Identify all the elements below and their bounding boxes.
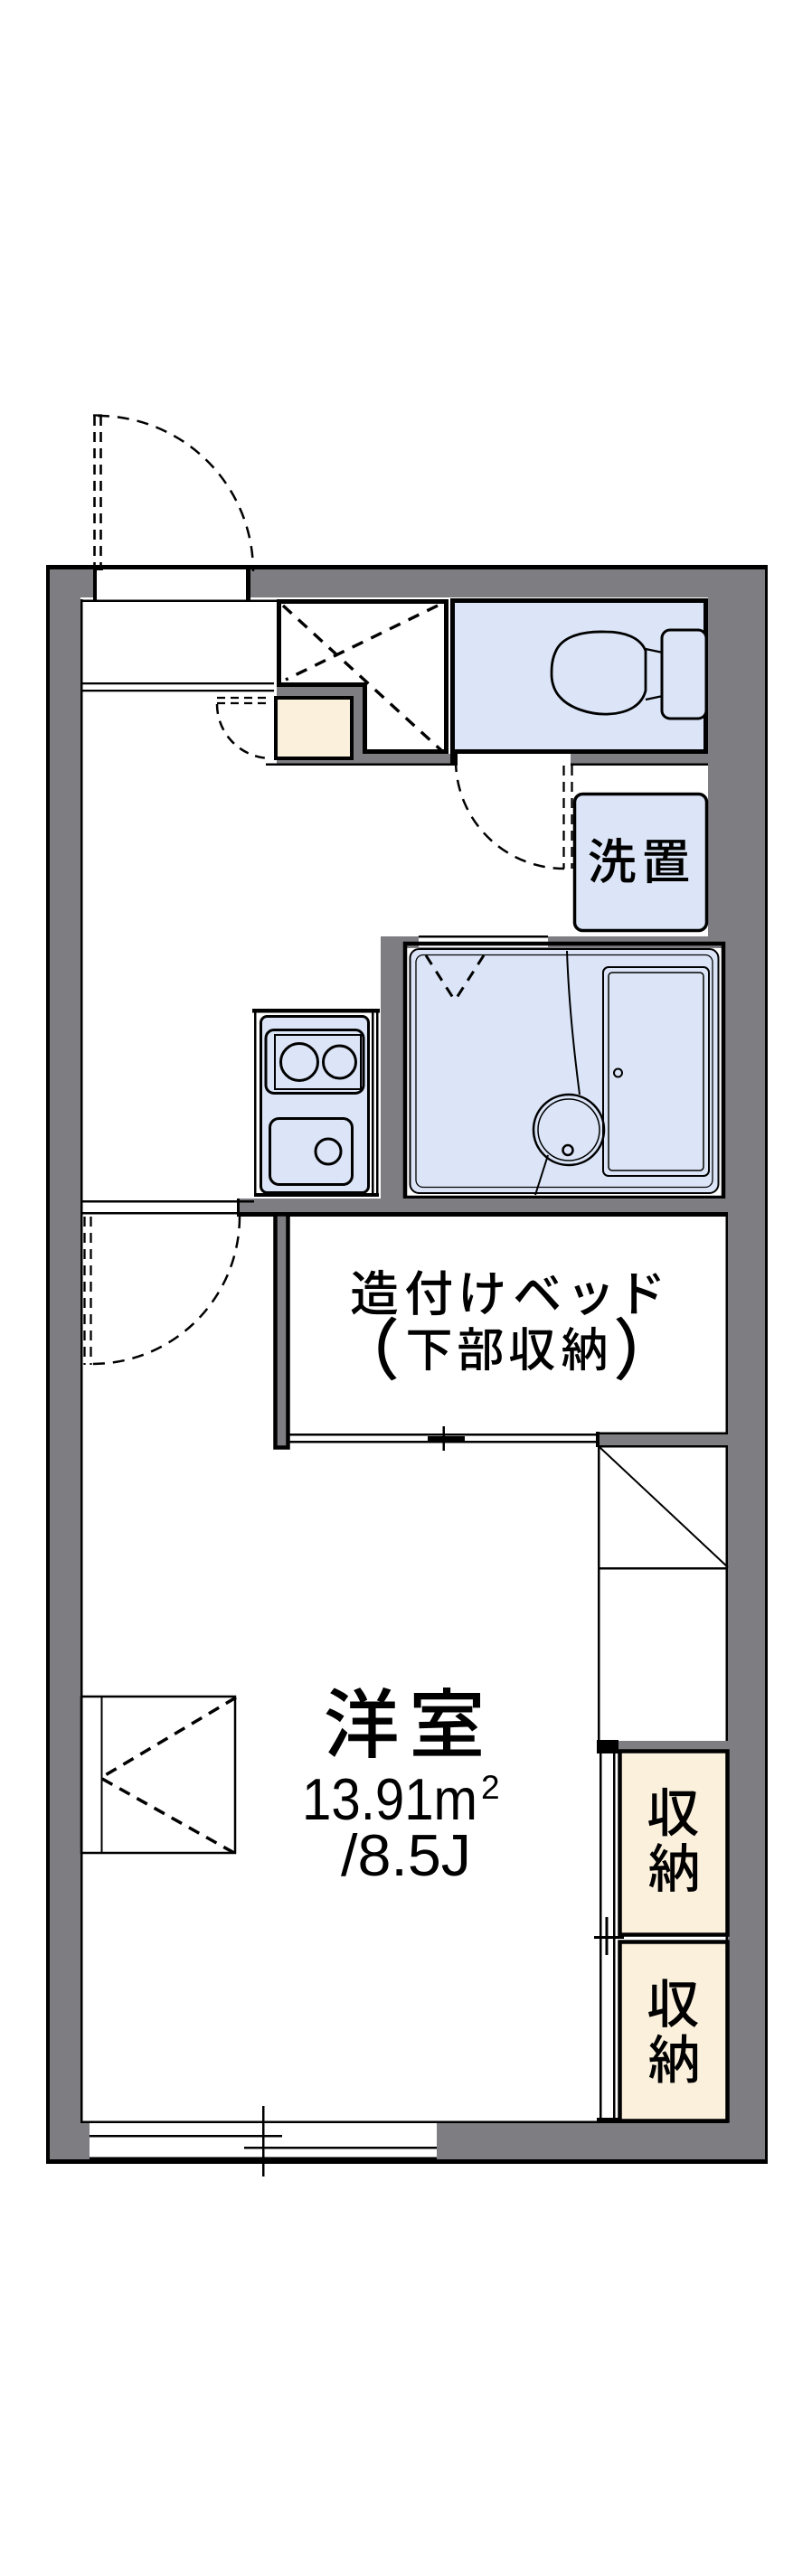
svg-text:2: 2	[481, 1769, 500, 1806]
svg-text:/8.5J: /8.5J	[341, 1822, 471, 1888]
